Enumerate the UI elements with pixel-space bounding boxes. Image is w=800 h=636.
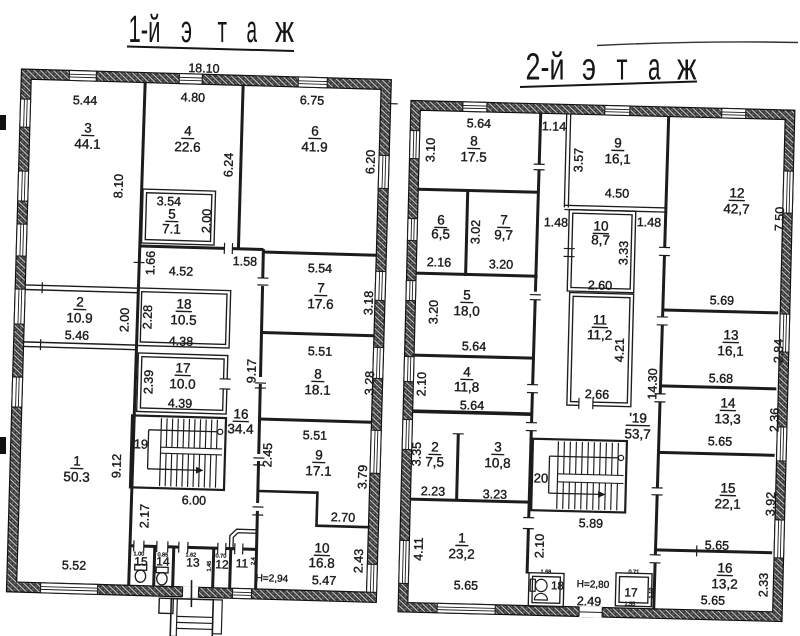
svg-text:H=2,80: H=2,80 <box>577 579 610 591</box>
svg-text:3: 3 <box>84 120 92 135</box>
svg-text:10,8: 10,8 <box>484 455 511 471</box>
svg-text:5.46: 5.46 <box>65 328 90 343</box>
svg-text:6.75: 6.75 <box>300 93 325 108</box>
svg-text:18: 18 <box>176 296 191 311</box>
svg-text:5.65: 5.65 <box>454 578 479 593</box>
svg-text:16,1: 16,1 <box>717 343 744 359</box>
svg-text:5.65: 5.65 <box>705 538 730 553</box>
svg-text:4.50: 4.50 <box>605 186 630 201</box>
svg-text:16.8: 16.8 <box>308 555 335 571</box>
svg-text:2.66: 2.66 <box>585 387 610 402</box>
svg-text:7.1: 7.1 <box>162 221 181 237</box>
svg-text:5.64: 5.64 <box>467 116 492 131</box>
svg-text:1: 1 <box>458 530 466 545</box>
svg-text:4: 4 <box>184 123 192 138</box>
svg-text:7,5: 7,5 <box>425 454 444 469</box>
svg-text:2.16: 2.16 <box>427 255 452 270</box>
svg-text:44.1: 44.1 <box>74 136 101 152</box>
svg-text:2.00: 2.00 <box>117 308 132 333</box>
svg-text:4.80: 4.80 <box>181 90 206 105</box>
svg-text:5: 5 <box>168 206 176 221</box>
svg-text:5.52: 5.52 <box>62 558 87 573</box>
svg-text:1.19: 1.19 <box>649 588 655 599</box>
svg-text:17.5: 17.5 <box>460 149 487 165</box>
svg-text:3.33: 3.33 <box>616 241 631 266</box>
svg-text:3.10: 3.10 <box>423 138 438 163</box>
svg-text:42,7: 42,7 <box>723 201 750 217</box>
svg-text:2.49: 2.49 <box>577 594 602 609</box>
svg-text:5.51: 5.51 <box>308 344 333 359</box>
svg-text:3.20: 3.20 <box>489 257 514 272</box>
svg-text:а: а <box>247 9 258 51</box>
svg-text:5.65: 5.65 <box>701 593 726 608</box>
svg-text:5.51: 5.51 <box>303 428 328 443</box>
svg-text:1.45: 1.45 <box>207 561 213 572</box>
svg-text:17.1: 17.1 <box>305 463 332 479</box>
svg-text:10.5: 10.5 <box>170 312 197 328</box>
svg-text:3.35: 3.35 <box>409 442 424 467</box>
svg-text:10.0: 10.0 <box>169 376 196 392</box>
svg-text:5: 5 <box>463 287 471 302</box>
svg-text:2.00: 2.00 <box>199 209 214 234</box>
svg-text:8: 8 <box>314 366 322 381</box>
svg-text:9: 9 <box>315 447 323 462</box>
svg-text:0.85: 0.85 <box>157 552 168 558</box>
svg-text:9.17: 9.17 <box>244 359 259 384</box>
svg-text:17.6: 17.6 <box>307 296 334 312</box>
svg-text:т: т <box>617 47 628 89</box>
svg-text:3.02: 3.02 <box>468 220 483 245</box>
svg-text:3: 3 <box>494 439 502 454</box>
svg-text:1.58: 1.58 <box>233 254 258 269</box>
svg-text:'19: '19 <box>629 410 647 425</box>
svg-text:2.4: 2.4 <box>251 557 257 565</box>
svg-text:6.24: 6.24 <box>221 153 236 178</box>
svg-text:16: 16 <box>233 406 248 421</box>
svg-text:6: 6 <box>311 123 319 138</box>
svg-text:1.14: 1.14 <box>542 119 567 134</box>
svg-text:2.36: 2.36 <box>767 408 782 433</box>
svg-text:2.70: 2.70 <box>331 510 356 525</box>
svg-text:22.6: 22.6 <box>174 139 201 155</box>
svg-text:4.52: 4.52 <box>169 264 194 279</box>
svg-text:2.17: 2.17 <box>137 504 152 529</box>
svg-text:8: 8 <box>470 133 478 148</box>
svg-text:17: 17 <box>624 585 638 599</box>
svg-text:11: 11 <box>593 312 607 327</box>
svg-text:2: 2 <box>431 439 439 454</box>
svg-text:2.28: 2.28 <box>140 305 155 330</box>
svg-text:1-й: 1-й <box>129 9 161 51</box>
svg-text:34.4: 34.4 <box>227 421 254 437</box>
svg-text:12: 12 <box>729 185 744 200</box>
svg-text:1.48: 1.48 <box>637 215 662 230</box>
svg-text:50.3: 50.3 <box>63 469 90 485</box>
svg-text:2.43: 2.43 <box>351 549 366 574</box>
svg-text:5.64: 5.64 <box>462 339 487 354</box>
svg-text:2.10: 2.10 <box>414 372 429 397</box>
svg-text:9: 9 <box>614 135 622 150</box>
svg-text:0.71: 0.71 <box>628 569 639 575</box>
svg-text:9.12: 9.12 <box>109 454 124 479</box>
svg-text:23,2: 23,2 <box>448 546 475 562</box>
svg-text:5.47: 5.47 <box>312 573 337 588</box>
svg-text:5.89: 5.89 <box>579 516 604 531</box>
svg-text:5.54: 5.54 <box>308 261 333 276</box>
svg-text:41.9: 41.9 <box>301 139 328 155</box>
svg-text:т: т <box>218 9 228 51</box>
svg-text:5.44: 5.44 <box>73 93 98 108</box>
svg-text:4.39: 4.39 <box>168 396 193 411</box>
svg-text:20: 20 <box>534 470 549 485</box>
svg-text:1.62: 1.62 <box>185 552 196 558</box>
svg-text:6,5: 6,5 <box>431 226 450 241</box>
svg-text:2.45: 2.45 <box>260 443 275 468</box>
svg-text:1: 1 <box>73 453 81 468</box>
svg-text:5.64: 5.64 <box>460 398 485 413</box>
svg-text:11: 11 <box>236 556 249 570</box>
svg-text:3.92: 3.92 <box>763 492 778 517</box>
svg-text:13: 13 <box>723 327 738 342</box>
svg-text:18,0: 18,0 <box>453 303 480 319</box>
svg-text:6: 6 <box>437 212 445 227</box>
svg-text:0.70: 0.70 <box>216 553 227 559</box>
svg-text:э: э <box>181 9 192 51</box>
svg-text:4: 4 <box>463 364 471 379</box>
svg-text:7.50: 7.50 <box>772 207 787 232</box>
svg-text:э: э <box>582 47 596 89</box>
svg-text:5.69: 5.69 <box>710 293 735 308</box>
svg-text:2.10: 2.10 <box>532 534 547 559</box>
svg-text:18: 18 <box>551 580 564 592</box>
svg-text:1.66: 1.66 <box>143 251 158 276</box>
svg-text:17: 17 <box>175 360 190 375</box>
svg-text:13,3: 13,3 <box>714 411 741 427</box>
svg-text:8.10: 8.10 <box>111 174 126 199</box>
svg-text:1.55: 1.55 <box>624 601 635 607</box>
svg-text:3.57: 3.57 <box>571 148 586 173</box>
svg-text:5.68: 5.68 <box>709 371 734 386</box>
svg-text:10: 10 <box>314 540 329 555</box>
svg-text:14.30: 14.30 <box>645 368 660 400</box>
svg-text:4.21: 4.21 <box>612 338 627 363</box>
svg-text:2: 2 <box>76 294 84 309</box>
svg-text:3.18: 3.18 <box>361 291 376 316</box>
svg-text:16: 16 <box>717 560 732 575</box>
svg-text:3.20: 3.20 <box>426 300 441 325</box>
svg-text:7: 7 <box>500 212 508 227</box>
svg-text:4.11: 4.11 <box>411 537 426 561</box>
svg-text:7: 7 <box>317 280 325 295</box>
svg-text:3.23: 3.23 <box>483 487 508 502</box>
svg-text:18.10: 18.10 <box>188 61 220 76</box>
svg-text:2.23: 2.23 <box>421 484 446 499</box>
svg-text:H=2,94: H=2,94 <box>256 573 289 585</box>
svg-text:2.33: 2.33 <box>756 573 771 598</box>
svg-text:15: 15 <box>720 480 735 495</box>
svg-text:2.60: 2.60 <box>588 278 613 293</box>
svg-text:5.65: 5.65 <box>708 434 733 449</box>
svg-text:6.20: 6.20 <box>363 150 378 175</box>
svg-text:18.1: 18.1 <box>304 382 331 398</box>
svg-text:8,7: 8,7 <box>591 232 610 247</box>
svg-text:9,7: 9,7 <box>494 227 513 242</box>
svg-text:53,7: 53,7 <box>624 426 651 442</box>
svg-text:3.28: 3.28 <box>362 371 377 396</box>
svg-text:11,2: 11,2 <box>587 327 613 343</box>
svg-text:6.00: 6.00 <box>182 493 207 508</box>
svg-text:22,1: 22,1 <box>714 496 741 512</box>
svg-text:ж: ж <box>275 9 294 51</box>
svg-text:19: 19 <box>134 436 149 451</box>
svg-text:1.00: 1.00 <box>133 551 144 557</box>
svg-text:2.84: 2.84 <box>771 339 786 364</box>
svg-text:16,1: 16,1 <box>604 151 631 167</box>
svg-text:3.79: 3.79 <box>355 465 370 490</box>
svg-text:11,8: 11,8 <box>454 379 480 395</box>
svg-text:1.48: 1.48 <box>544 215 569 230</box>
svg-text:14: 14 <box>720 395 736 410</box>
svg-text:13,2: 13,2 <box>711 576 738 592</box>
svg-text:1.68: 1.68 <box>540 569 551 575</box>
svg-text:2-й: 2-й <box>526 47 565 89</box>
svg-text:4.38: 4.38 <box>169 334 194 349</box>
svg-text:10.9: 10.9 <box>66 310 93 326</box>
svg-text:2.39: 2.39 <box>141 370 156 395</box>
